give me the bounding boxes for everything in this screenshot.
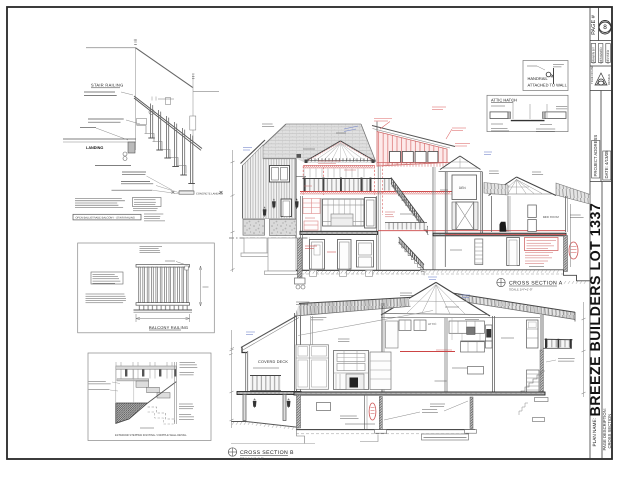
svg-text:CROSS SECTION: CROSS SECTION [607,414,612,449]
svg-text:DESIGNED: DESIGNED [599,47,603,64]
svg-text:SCALE 1/4"=1'-0": SCALE 1/4"=1'-0" [240,457,264,461]
svg-text:ATTACHED TO WALL: ATTACHED TO WALL [528,83,568,88]
svg-text:REVISED: REVISED [606,49,610,63]
svg-text:LANDING: LANDING [86,146,103,150]
svg-text:HANDRAIL: HANDRAIL [528,76,549,81]
svg-text:PROJECT ADDRESS: PROJECT ADDRESS [593,135,598,177]
svg-text:8: 8 [603,24,607,31]
svg-text:BREEZE BUILDERS LOT 1337: BREEZE BUILDERS LOT 1337 [588,203,604,417]
svg-text:OPEN BALUSTRADE BALCONY - STAI: OPEN BALUSTRADE BALCONY - STAIR RAILING [76,216,135,219]
svg-text:PLAN NAME:: PLAN NAME: [592,418,597,446]
svg-text:CONCRETE LANDING: CONCRETE LANDING [196,192,223,195]
svg-text:ATTIC: ATTIC [428,322,437,326]
svg-text:CROSS SECTION B: CROSS SECTION B [240,450,294,456]
svg-text:COVERD DECK: COVERD DECK [258,360,288,364]
svg-text:TRUE HOUSE: TRUE HOUSE [590,66,594,84]
svg-text:DESIGN: DESIGN [607,74,611,85]
svg-text:DEN: DEN [459,186,466,190]
svg-text:SCALE 1/4"=1'-0": SCALE 1/4"=1'-0" [509,288,533,292]
svg-text:PAGE #: PAGE # [591,14,597,35]
svg-text:EXTERIOR STEPPED FOOTING / CRI: EXTERIOR STEPPED FOOTING / CRIPPLE WALL … [115,434,187,437]
svg-text:BALCONY RAILING: BALCONY RAILING [149,325,188,330]
svg-text:BED ROOM: BED ROOM [543,215,559,219]
svg-text:CROSS SECTION A: CROSS SECTION A [509,281,563,287]
svg-text:DATE: 4/13/05: DATE: 4/13/05 [604,150,609,178]
svg-text:DRAWN BY: DRAWN BY [592,47,596,64]
svg-text:STAIR RAILING: STAIR RAILING [91,83,124,88]
